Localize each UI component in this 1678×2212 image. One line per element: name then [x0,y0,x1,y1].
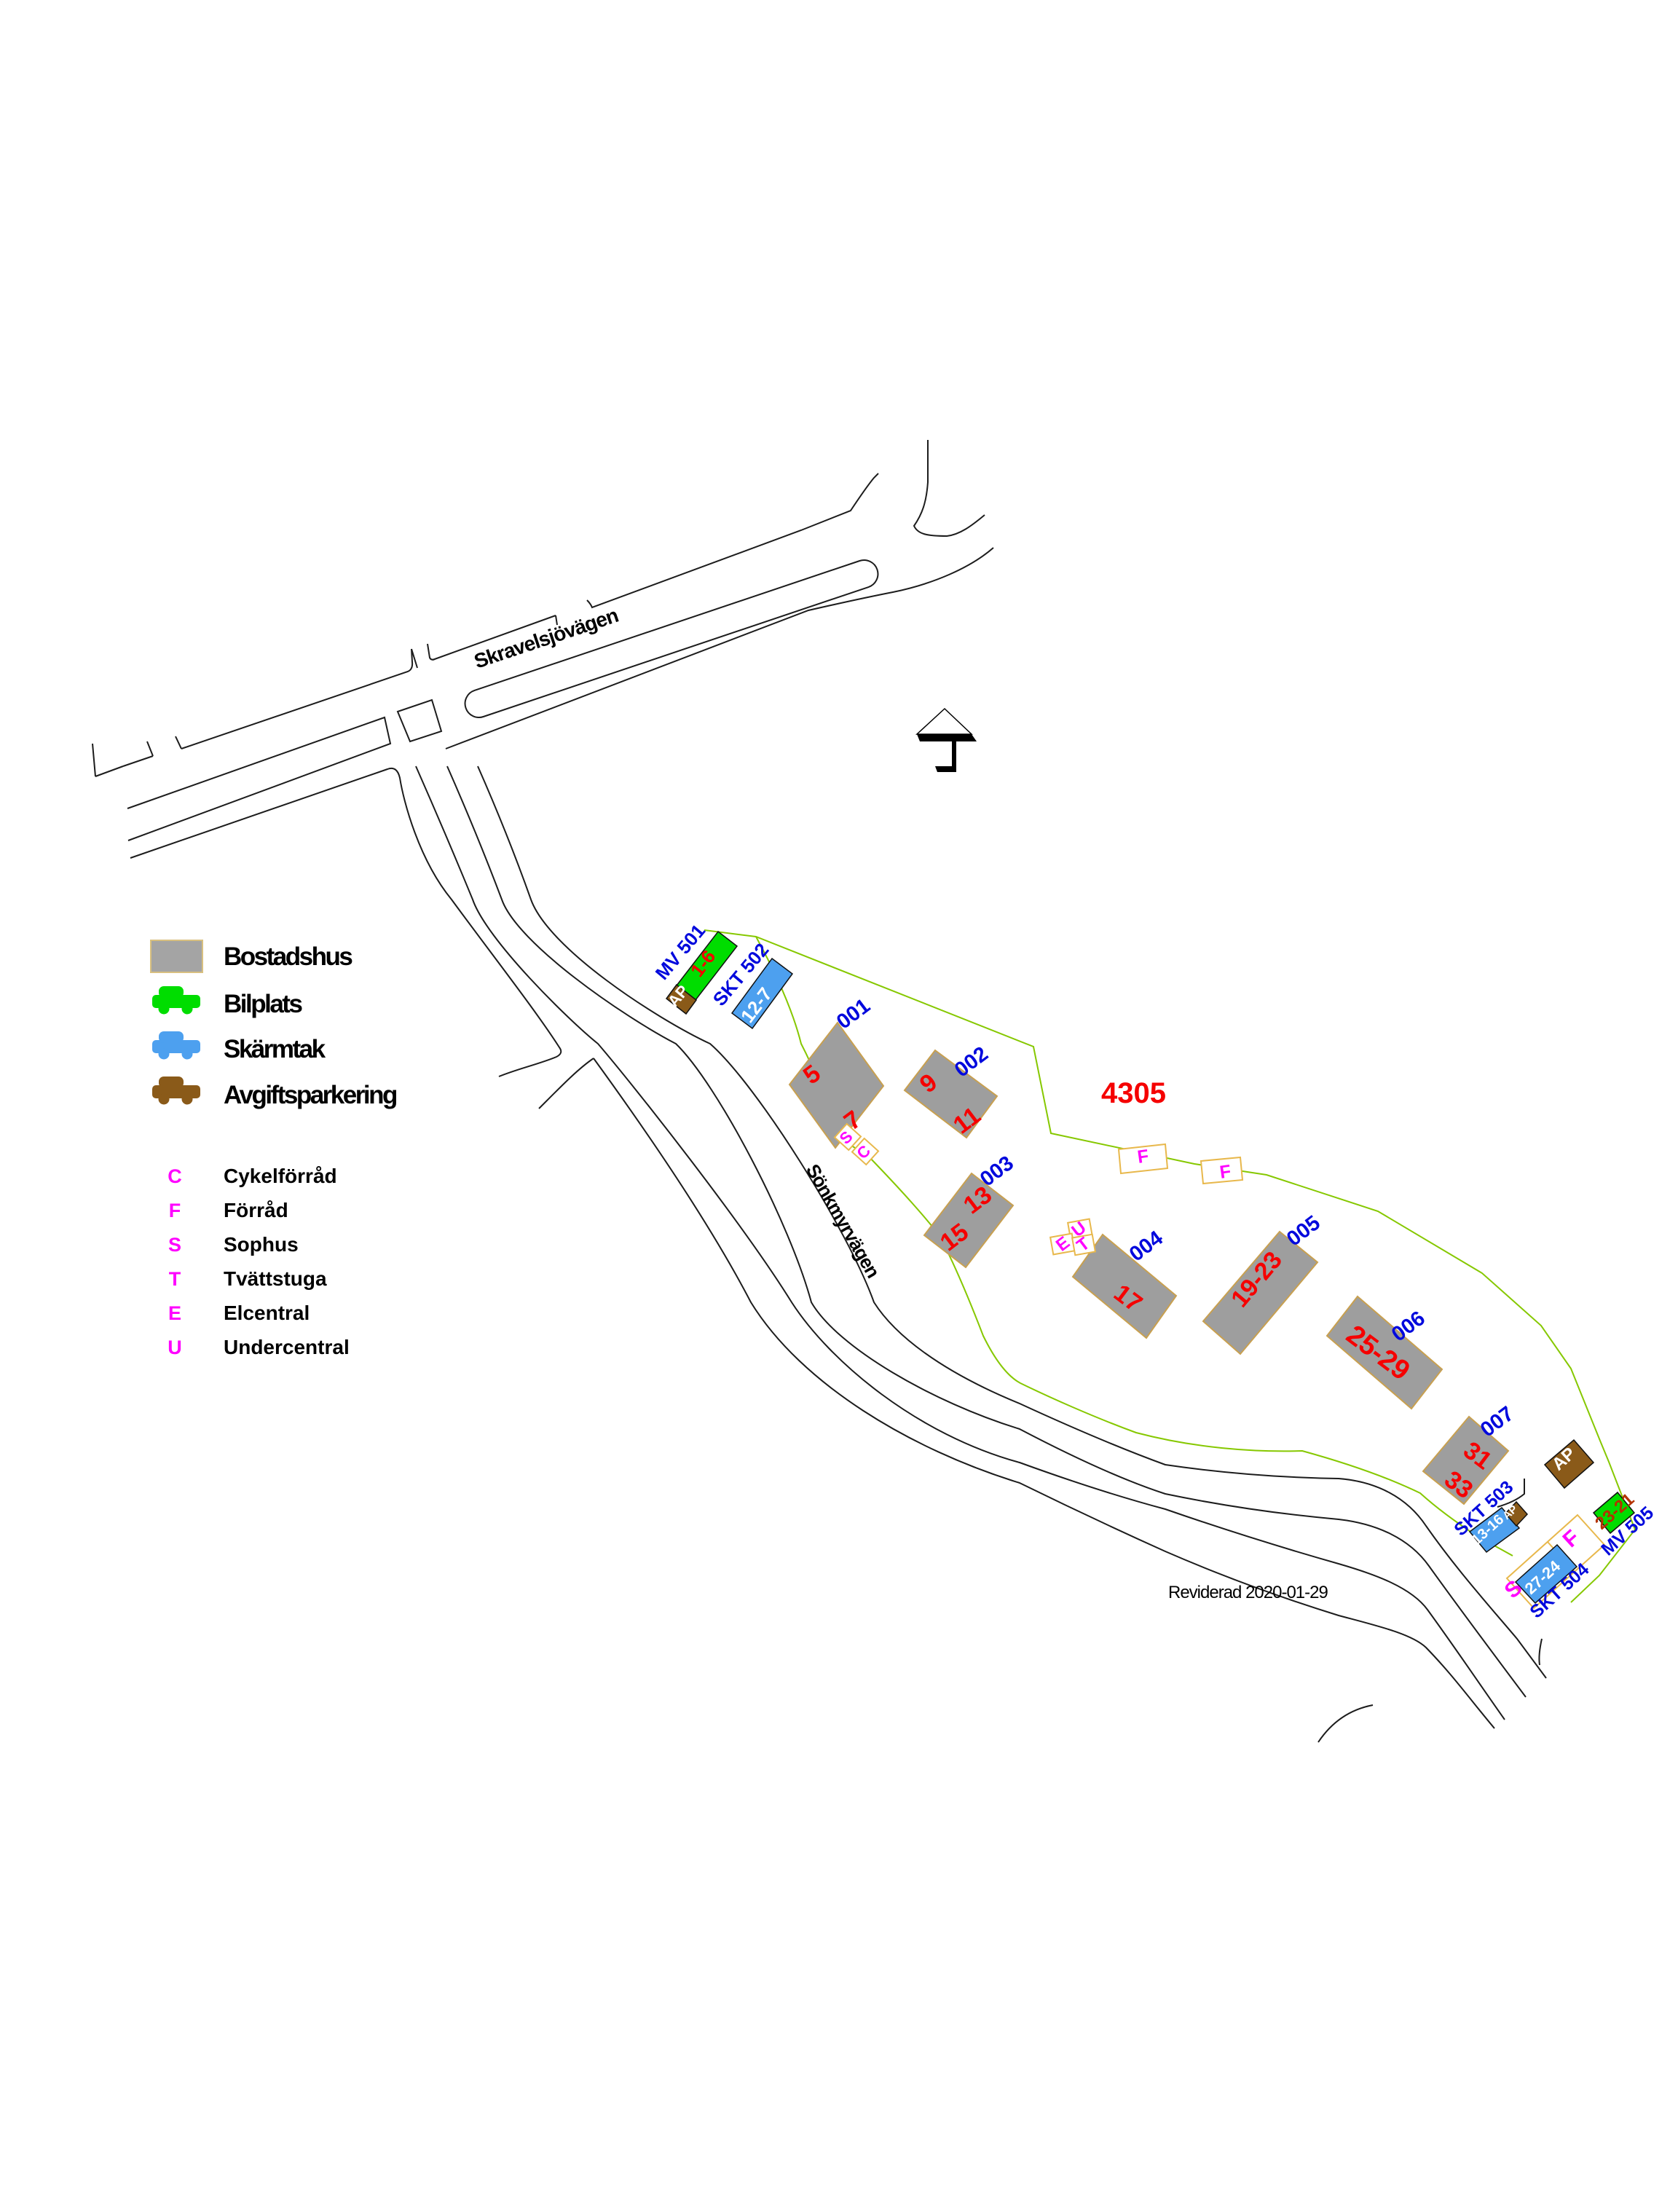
svg-text:Sophus: Sophus [224,1233,299,1256]
svg-text:4305: 4305 [1101,1077,1166,1109]
svg-text:Bostadshus: Bostadshus [224,942,352,971]
svg-text:F: F [169,1200,181,1221]
svg-text:T: T [169,1268,181,1290]
svg-text:Bilplats: Bilplats [224,990,302,1018]
svg-text:Förråd: Förråd [224,1199,288,1221]
svg-text:Cykelförråd: Cykelförråd [224,1165,337,1187]
svg-text:Avgiftsparkering: Avgiftsparkering [224,1081,397,1109]
svg-text:C: C [168,1165,182,1187]
svg-text:E: E [168,1302,181,1324]
svg-text:Reviderad 2020-01-29: Reviderad 2020-01-29 [1168,1583,1328,1602]
svg-text:U: U [168,1337,182,1358]
svg-text:Elcentral: Elcentral [224,1302,310,1324]
svg-text:S: S [168,1234,181,1256]
svg-text:Skärmtak: Skärmtak [224,1035,326,1063]
svg-text:Undercentral: Undercentral [224,1336,350,1358]
svg-text:Tvättstuga: Tvättstuga [224,1267,327,1290]
